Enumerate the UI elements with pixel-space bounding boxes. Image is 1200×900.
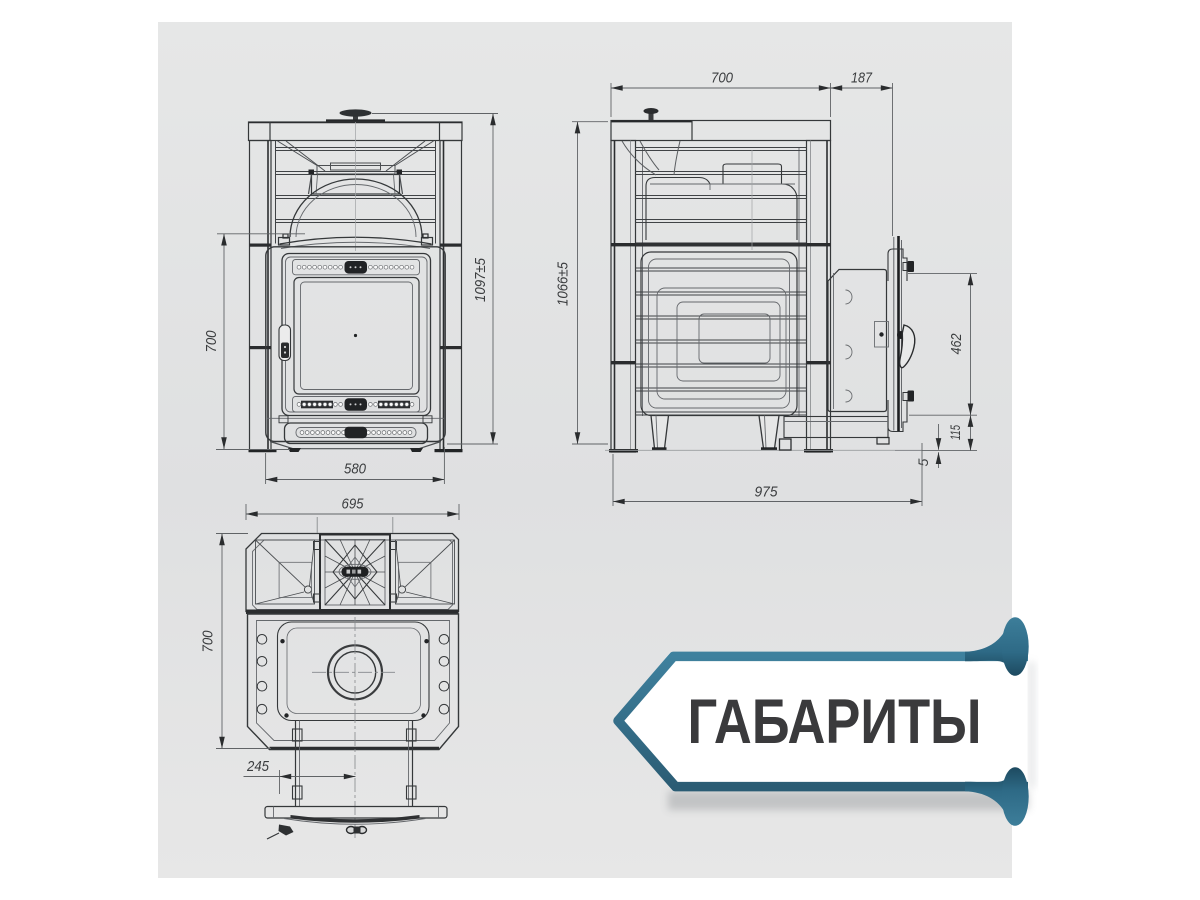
- svg-text:695: 695: [342, 496, 365, 513]
- svg-text:1097±5: 1097±5: [472, 257, 489, 302]
- svg-text:245: 245: [246, 758, 269, 775]
- svg-text:700: 700: [711, 70, 734, 87]
- svg-text:580: 580: [344, 461, 367, 478]
- svg-text:700: 700: [203, 330, 220, 353]
- svg-text:5: 5: [915, 458, 931, 466]
- svg-text:462: 462: [948, 333, 965, 355]
- svg-text:115: 115: [947, 425, 963, 440]
- svg-text:975: 975: [755, 484, 779, 501]
- svg-text:700: 700: [200, 630, 217, 653]
- svg-text:187: 187: [851, 70, 873, 87]
- svg-text:1066±5: 1066±5: [555, 261, 572, 306]
- svg-text:ГАБАРИТЫ: ГАБАРИТЫ: [688, 687, 982, 757]
